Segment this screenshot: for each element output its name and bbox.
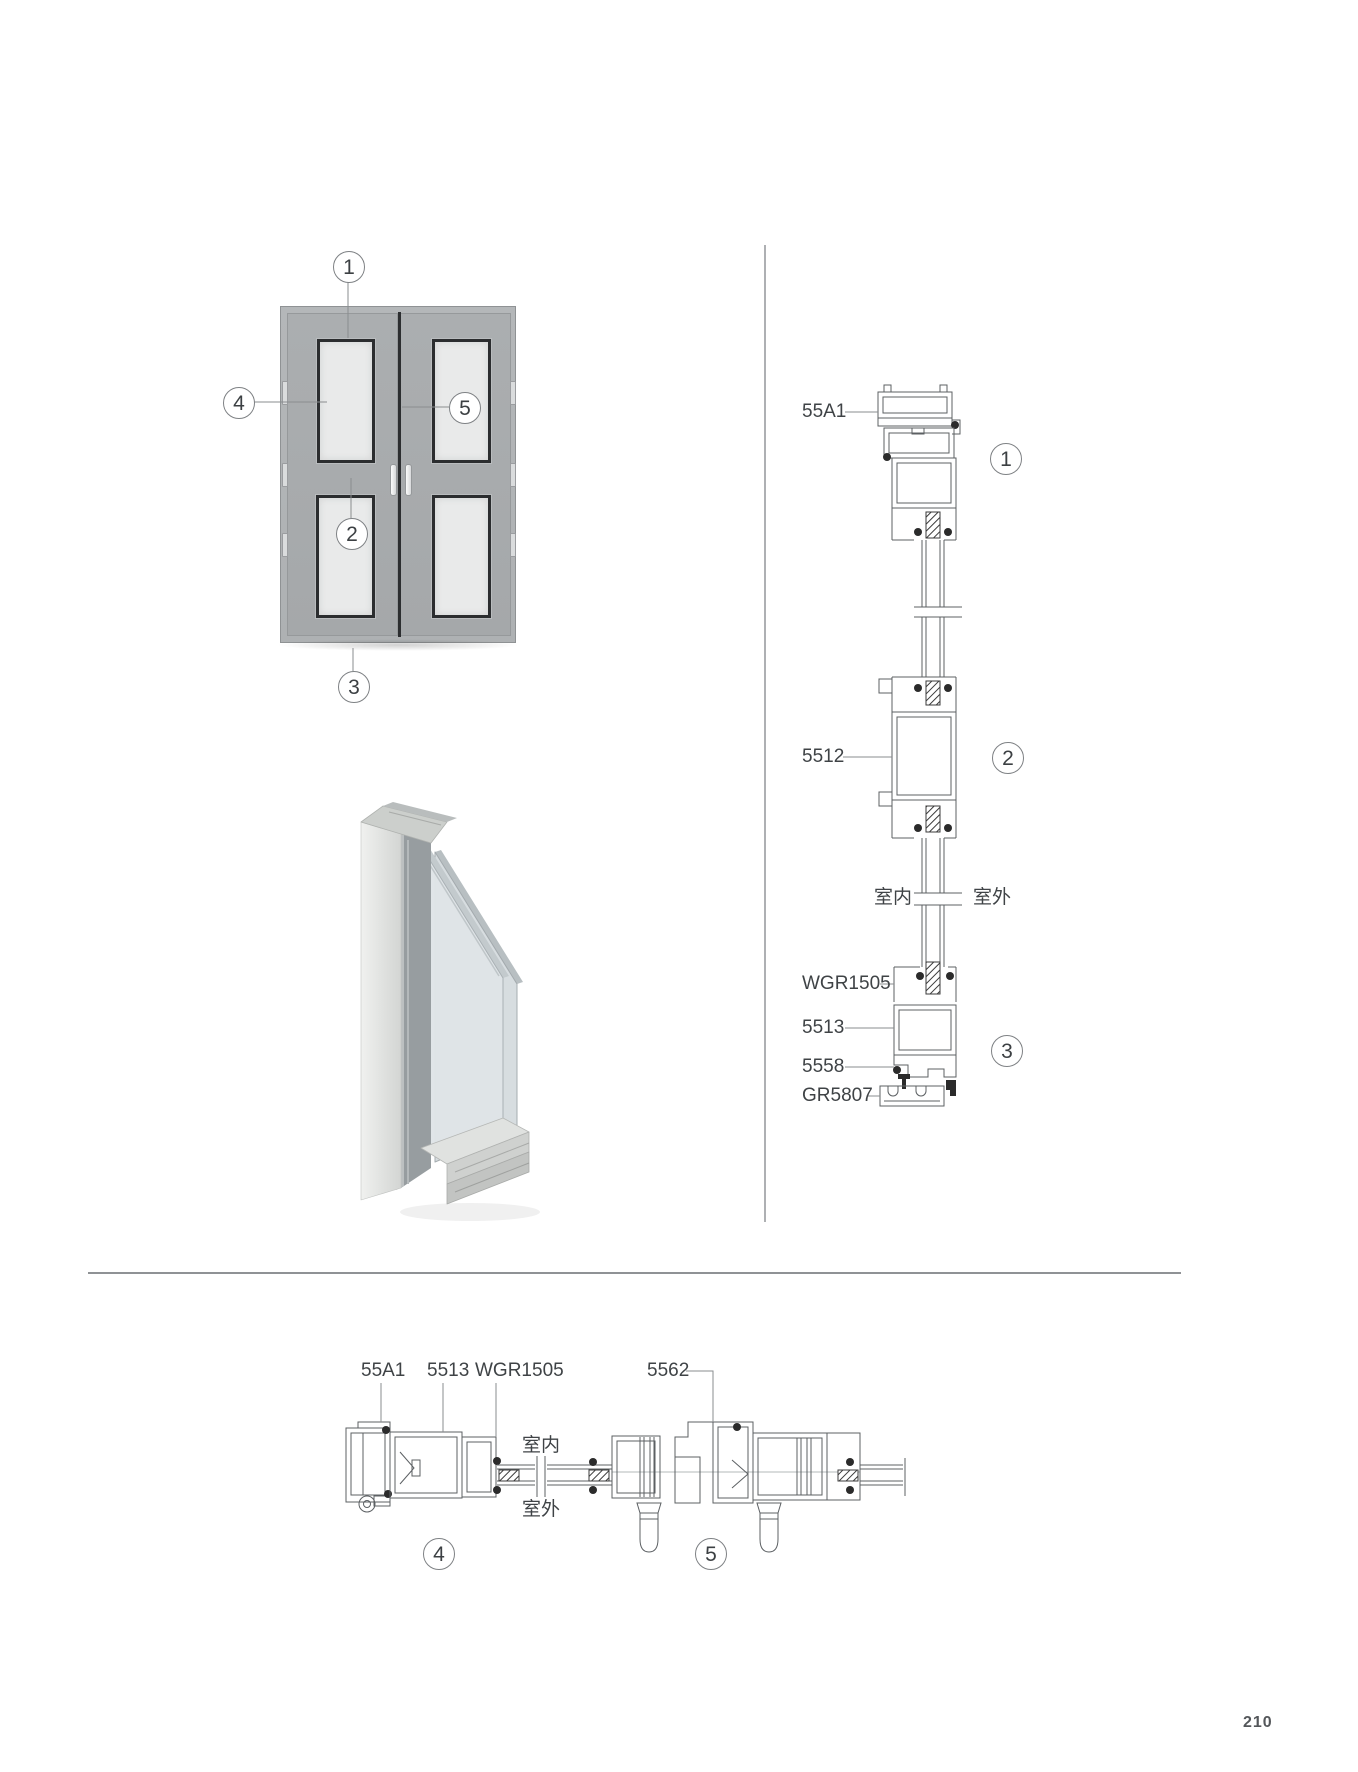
door-handle-left — [390, 464, 397, 496]
indoor-label-horizontal: 室内 — [522, 1436, 560, 1456]
door-center-split — [398, 312, 401, 637]
door-front-view — [280, 306, 516, 643]
door-handle-right — [405, 464, 412, 496]
callout-number: 4 — [233, 393, 245, 414]
part-label-5512: 5512 — [802, 747, 844, 767]
front-callout-3: 3 — [338, 671, 370, 703]
glass-panel-left-upper — [317, 339, 375, 463]
vertical-callout-3: 3 — [991, 1035, 1023, 1067]
hinge-left-middle — [282, 463, 288, 487]
part-label-5562: 5562 — [647, 1361, 689, 1381]
part-label-wgr1505-horizontal: WGR1505 — [475, 1361, 564, 1381]
outdoor-label-horizontal: 室外 — [522, 1500, 560, 1520]
indoor-label-vertical: 室内 — [874, 888, 912, 908]
part-label-5558: 5558 — [802, 1057, 844, 1077]
catalog-page: 1 2 3 4 5 55A1 5512 WGR1505 5513 5558 GR… — [0, 0, 1358, 1772]
callout-number: 3 — [348, 677, 360, 698]
glass-lines — [922, 540, 944, 967]
front-callout-4: 4 — [223, 387, 255, 419]
callout-number: 5 — [705, 1544, 717, 1565]
horizontal-callout-4: 4 — [423, 1538, 455, 1570]
part-label-5513-horizontal: 5513 — [427, 1361, 469, 1381]
callout-number: 2 — [346, 524, 358, 545]
front-callout-1: 1 — [333, 251, 365, 283]
iso-profile-render — [361, 802, 540, 1221]
front-callout-2: 2 — [336, 518, 368, 550]
horizontal-section-drawing — [346, 1422, 905, 1552]
front-callout-5: 5 — [449, 392, 481, 424]
callout-number: 5 — [459, 398, 471, 419]
hinge-right-top — [510, 381, 516, 405]
callout-number: 1 — [1000, 449, 1012, 470]
outdoor-label-vertical: 室外 — [973, 888, 1011, 908]
glass-panel-left-lower — [316, 495, 375, 618]
part-label-55a1-vertical: 55A1 — [802, 402, 846, 422]
vertical-section-drawing — [878, 385, 962, 1106]
page-number: 210 — [1243, 1714, 1273, 1732]
horizontal-callout-5: 5 — [695, 1538, 727, 1570]
callout-number: 2 — [1002, 748, 1014, 769]
vertical-callout-1: 1 — [990, 443, 1022, 475]
part-label-gr5807: GR5807 — [802, 1086, 873, 1106]
callout-number: 4 — [433, 1544, 445, 1565]
hinge-right-bottom — [510, 533, 516, 557]
part-label-5513-vertical: 5513 — [802, 1018, 844, 1038]
part-label-wgr1505-vertical: WGR1505 — [802, 974, 891, 994]
door-handle-section — [637, 1503, 661, 1552]
drawing-layer — [0, 0, 1358, 1772]
glass-panel-right-lower — [432, 495, 491, 618]
callout-number: 3 — [1001, 1041, 1013, 1062]
hinge-left-bottom — [282, 533, 288, 557]
part-label-55a1-horizontal: 55A1 — [361, 1361, 405, 1381]
callout-number: 1 — [343, 257, 355, 278]
hinge-left-top — [282, 381, 288, 405]
vertical-callout-2: 2 — [992, 742, 1024, 774]
hinge-right-middle — [510, 463, 516, 487]
